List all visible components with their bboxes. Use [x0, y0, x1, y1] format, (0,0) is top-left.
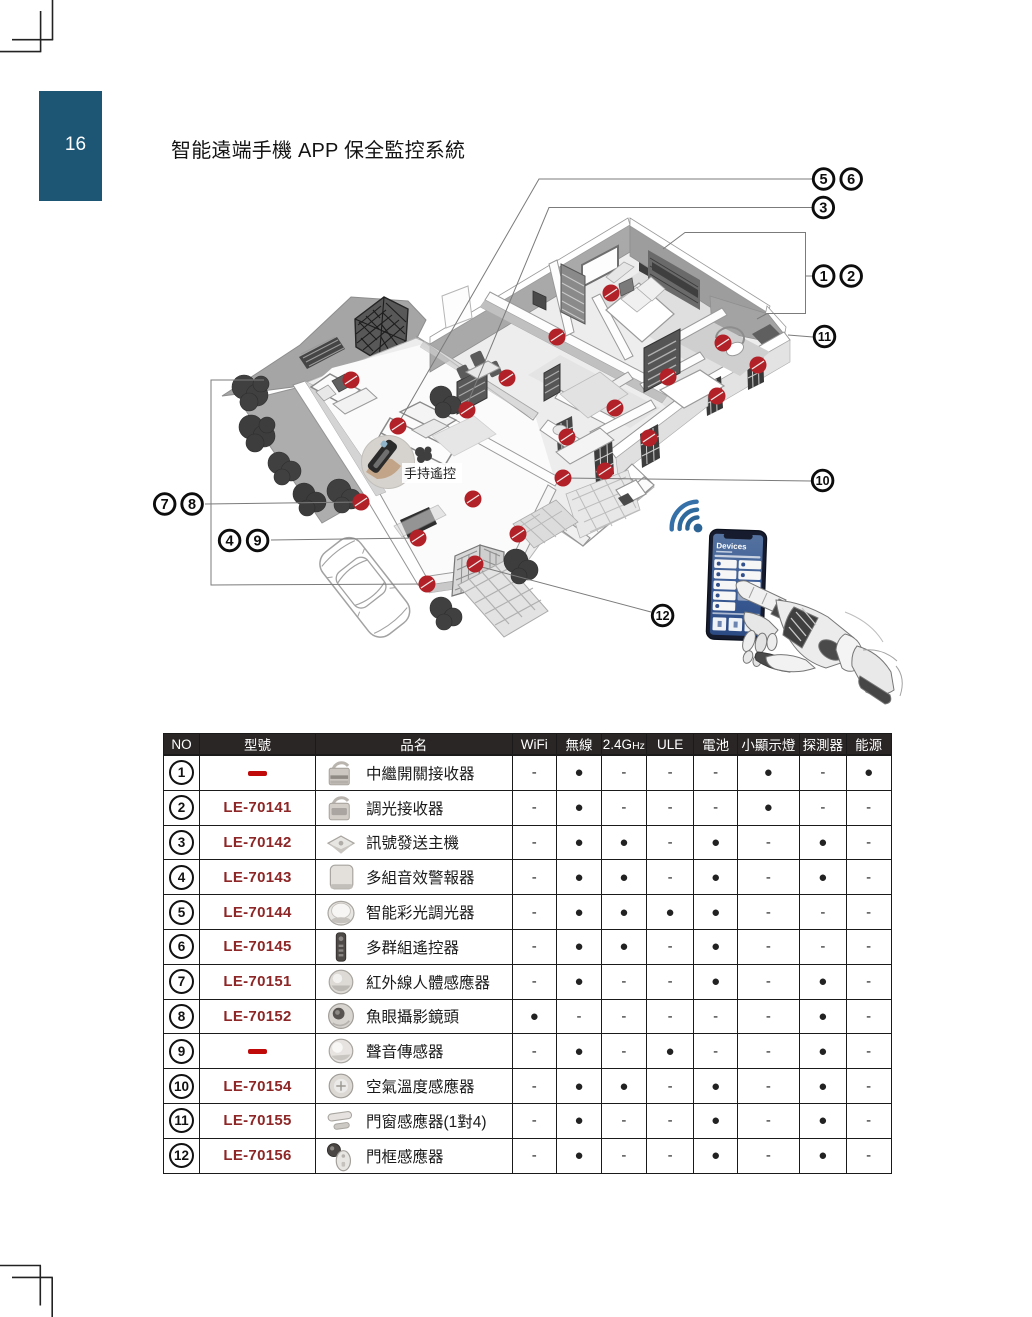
svg-text:12: 12 — [656, 609, 670, 623]
svg-text:7: 7 — [161, 497, 169, 513]
svg-text:5: 5 — [820, 172, 828, 188]
svg-text:10: 10 — [816, 474, 830, 488]
svg-text:Devices: Devices — [716, 541, 747, 551]
svg-text:4: 4 — [226, 534, 234, 550]
svg-text:2: 2 — [847, 269, 855, 285]
svg-text:手持遙控: 手持遙控 — [404, 466, 456, 481]
svg-text:6: 6 — [847, 172, 855, 188]
svg-text:8: 8 — [188, 497, 196, 513]
svg-text:9: 9 — [254, 534, 262, 550]
svg-text:1: 1 — [820, 269, 828, 285]
svg-text:11: 11 — [818, 330, 831, 344]
svg-text:3: 3 — [819, 201, 827, 217]
